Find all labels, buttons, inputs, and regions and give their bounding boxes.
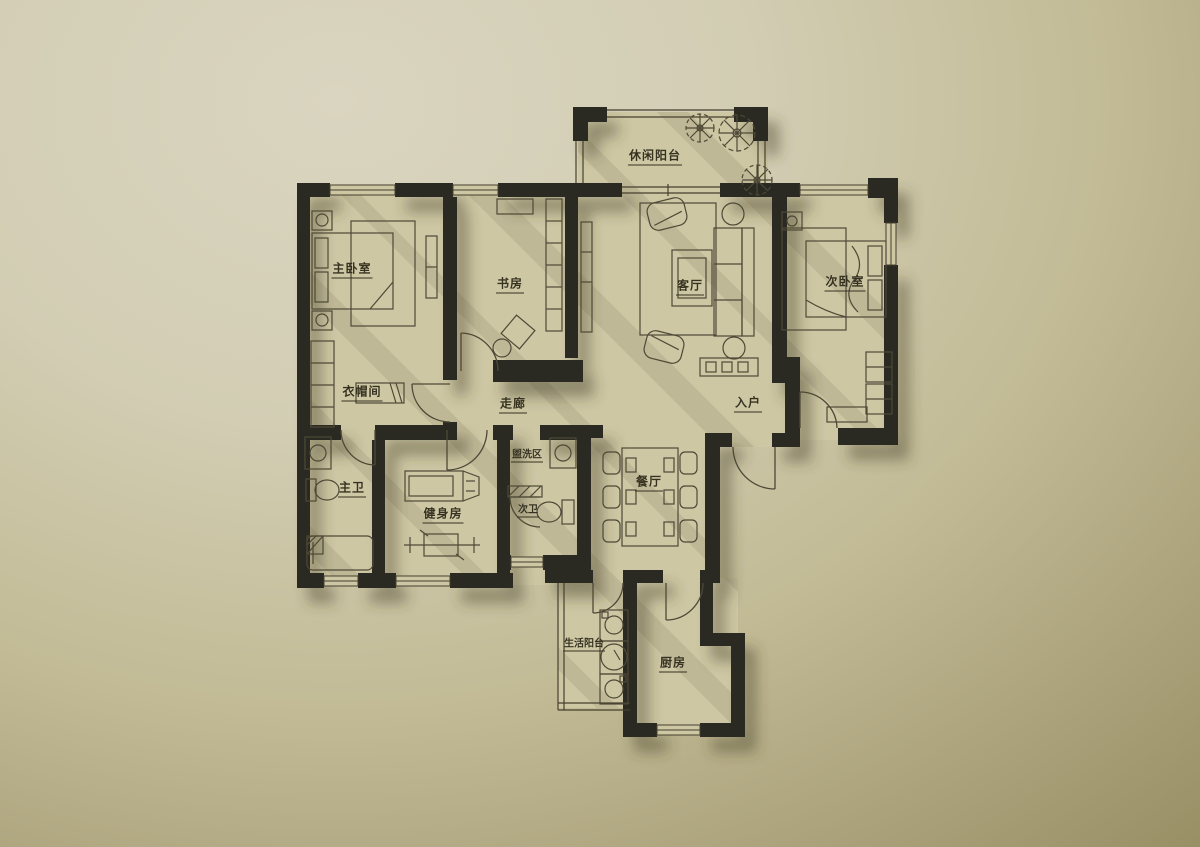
room-label-kitchen: 厨房 [659, 654, 687, 673]
room-label-entry: 入户 [734, 394, 762, 413]
room-label-hallway: 走廊 [499, 395, 527, 414]
room-label-living-room: 客厅 [676, 277, 704, 296]
room-label-cloakroom: 衣帽间 [341, 383, 382, 402]
room-label-master-bath: 主卫 [338, 479, 366, 498]
room-label-study: 书房 [496, 275, 524, 294]
floor-plan-drawing [0, 0, 1200, 847]
room-label-gym: 健身房 [422, 505, 463, 524]
room-label-second-bedroom: 次卧室 [824, 273, 865, 292]
room-label-dining-room: 餐厅 [635, 473, 663, 492]
room-label-leisure-balcony: 休闲阳台 [628, 147, 682, 166]
room-label-service-balcony: 生活阳台 [563, 635, 605, 652]
room-label-master-bedroom: 主卧室 [331, 260, 372, 279]
room-label-wash-area: 盥洗区 [511, 446, 543, 463]
room-label-second-bath: 次卫 [517, 501, 539, 518]
floor-plan-image: 休闲阳台 主卧室 书房 客厅 次卧室 衣帽间 走廊 入户 主卫 健身房 盥洗区 … [0, 0, 1200, 847]
